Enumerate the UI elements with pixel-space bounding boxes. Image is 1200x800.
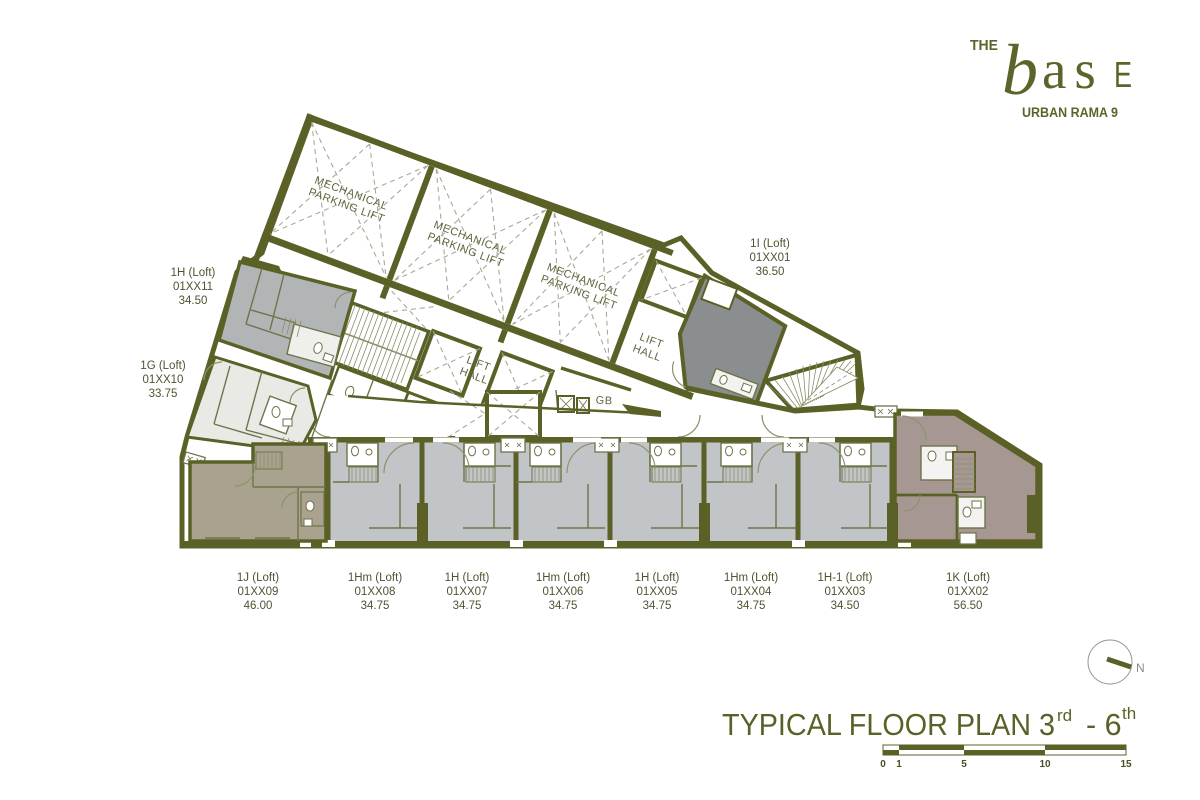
svg-text:1H (Loft): 1H (Loft): [171, 267, 216, 279]
svg-text:1Hm (Loft): 1Hm (Loft): [536, 572, 590, 584]
svg-text:5: 5: [961, 759, 967, 770]
svg-text:1J (Loft): 1J (Loft): [237, 572, 279, 584]
svg-text:THE: THE: [970, 38, 998, 54]
svg-text:th: th: [1122, 704, 1136, 723]
svg-text:33.75: 33.75: [149, 388, 178, 400]
svg-text:E: E: [1114, 54, 1132, 95]
svg-text:01XX01: 01XX01: [750, 252, 791, 264]
svg-text:01XX10: 01XX10: [143, 374, 184, 386]
svg-text:- 6: - 6: [1086, 708, 1122, 742]
svg-text:10: 10: [1039, 759, 1051, 770]
svg-text:1I (Loft): 1I (Loft): [750, 238, 790, 250]
svg-text:as: as: [1042, 39, 1104, 100]
svg-text:34.75: 34.75: [361, 600, 390, 612]
svg-text:34.75: 34.75: [737, 600, 766, 612]
svg-text:0: 0: [880, 759, 886, 770]
svg-text:01XX11: 01XX11: [173, 281, 213, 293]
svg-text:1Hm (Loft): 1Hm (Loft): [724, 572, 778, 584]
svg-text:15: 15: [1120, 759, 1132, 770]
svg-text:34.50: 34.50: [831, 600, 860, 612]
svg-text:01XX07: 01XX07: [447, 586, 488, 598]
svg-text:56.50: 56.50: [954, 600, 983, 612]
svg-text:rd: rd: [1057, 706, 1072, 725]
svg-text:GB: GB: [595, 395, 613, 408]
svg-text:46.00: 46.00: [244, 600, 273, 612]
svg-text:01XX03: 01XX03: [825, 586, 866, 598]
svg-text:34.75: 34.75: [549, 600, 578, 612]
svg-text:N: N: [1136, 661, 1145, 675]
svg-text:01XX02: 01XX02: [948, 586, 989, 598]
svg-text:01XX06: 01XX06: [543, 586, 584, 598]
svg-text:01XX08: 01XX08: [355, 586, 396, 598]
svg-text:URBAN RAMA 9: URBAN RAMA 9: [1022, 105, 1118, 120]
svg-text:1H-1 (Loft): 1H-1 (Loft): [818, 572, 873, 584]
svg-text:1K (Loft): 1K (Loft): [946, 572, 990, 584]
svg-text:01XX09: 01XX09: [238, 586, 279, 598]
svg-text:b: b: [1002, 30, 1038, 110]
svg-text:34.75: 34.75: [643, 600, 672, 612]
svg-text:1H (Loft): 1H (Loft): [445, 572, 490, 584]
svg-text:1Hm (Loft): 1Hm (Loft): [348, 572, 402, 584]
svg-text:36.50: 36.50: [756, 266, 785, 278]
svg-text:34.75: 34.75: [453, 600, 482, 612]
svg-text:1H (Loft): 1H (Loft): [635, 572, 680, 584]
svg-text:TYPICAL FLOOR PLAN 3: TYPICAL FLOOR PLAN 3: [722, 708, 1055, 742]
svg-text:01XX05: 01XX05: [637, 586, 678, 598]
svg-text:34.50: 34.50: [179, 295, 208, 307]
svg-text:1G (Loft): 1G (Loft): [140, 360, 186, 372]
svg-text:01XX04: 01XX04: [731, 586, 773, 598]
svg-text:1: 1: [896, 759, 902, 770]
